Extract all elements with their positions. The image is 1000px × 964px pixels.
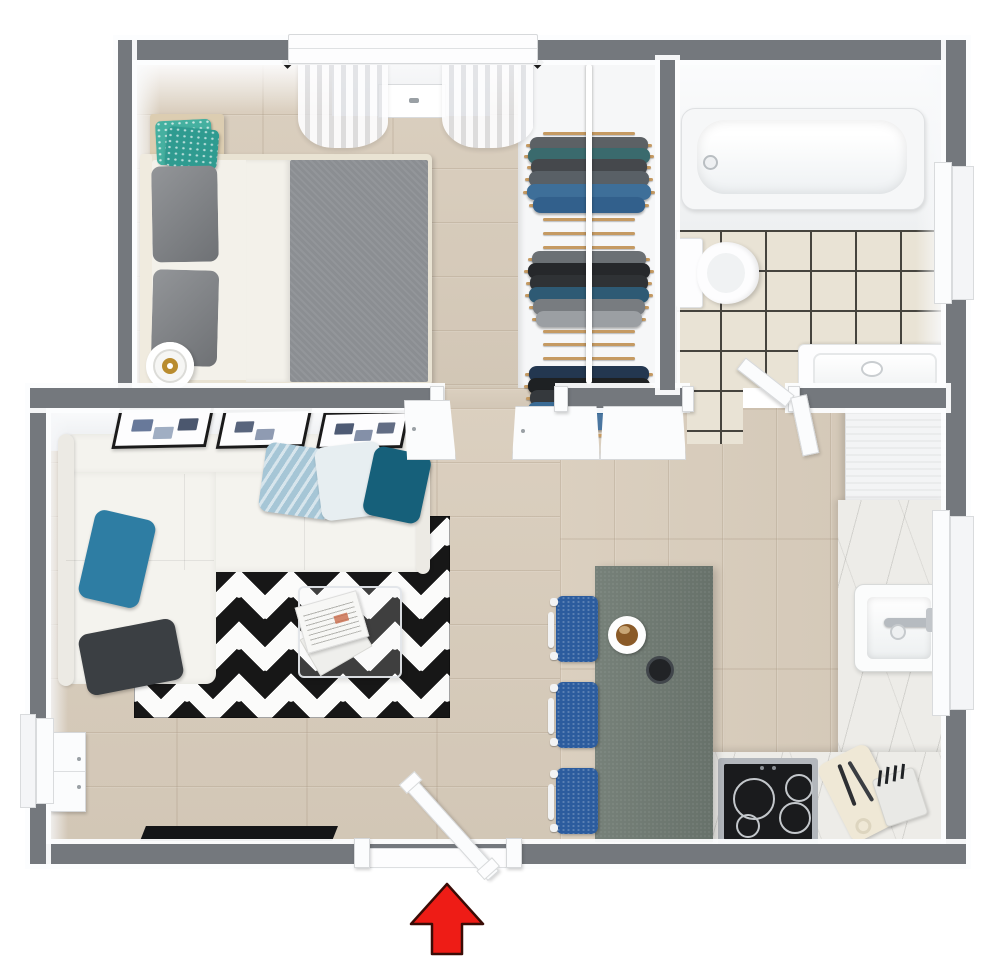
chair-leg: [550, 652, 558, 660]
floor-plan: [0, 0, 1000, 964]
coffee-foam: [619, 626, 630, 634]
bedroom-window: [288, 34, 538, 64]
art-shape: [234, 421, 254, 433]
bathroom-doorway-tiles: [687, 388, 743, 444]
window-handle: [409, 98, 419, 103]
bedroom-door-leaf: [404, 400, 456, 460]
door-jamb: [506, 838, 522, 868]
knife: [877, 770, 882, 786]
art-shape: [376, 422, 396, 433]
chair-leg: [548, 784, 554, 820]
chair-leg: [550, 598, 558, 606]
tv: [140, 826, 338, 841]
closet-rail: [586, 64, 592, 384]
cutting-board-handle: [853, 815, 875, 837]
closet-door-panel: [600, 406, 686, 460]
cooktop-burner: [785, 774, 813, 802]
bathtub-basin: [697, 120, 907, 194]
wall-divider-living: [30, 388, 440, 408]
bed-sheet-fold: [246, 160, 290, 382]
chair-leg: [550, 770, 558, 778]
sideboard-divider: [51, 771, 85, 772]
chair-leg: [548, 698, 554, 734]
wall-divider-closet: [560, 388, 685, 408]
closet-door-panel: [512, 406, 600, 460]
sheer-curtain-left: [298, 60, 388, 148]
chair-seat: [556, 768, 598, 834]
door-handle: [412, 427, 416, 431]
cooktop-burner: [733, 778, 775, 820]
cooktop-control: [772, 766, 776, 770]
sofa-cushion-seam: [184, 474, 185, 570]
chair-leg: [550, 738, 558, 746]
wall-closet-bathroom: [660, 60, 675, 390]
sink-drain: [890, 624, 906, 640]
door-handle: [521, 429, 525, 433]
dining-chair: [556, 682, 598, 748]
vanity-faucet: [861, 361, 883, 377]
wall-top: [118, 40, 966, 60]
chair-leg: [550, 684, 558, 692]
toilet-bowl: [697, 242, 759, 304]
sideboard: [50, 732, 86, 812]
door-jamb: [682, 386, 694, 412]
kitchen-window: [932, 510, 950, 716]
living-window: [36, 718, 54, 804]
wall-art-frame: [111, 405, 214, 449]
chair-leg: [548, 612, 554, 648]
cooktop-control: [760, 766, 764, 770]
art-shape: [353, 430, 373, 441]
chair-seat: [556, 596, 598, 662]
door-jamb: [354, 838, 370, 868]
coffee-cup-saucer: [608, 616, 646, 654]
knife: [893, 765, 898, 781]
bed-blanket: [290, 160, 428, 382]
door-jamb: [554, 386, 568, 412]
table-lamp: [146, 342, 194, 390]
entrance-arrow: [400, 876, 496, 962]
small-bowl: [646, 656, 674, 684]
bathroom-window-sill: [952, 166, 974, 300]
tall-cabinet: [845, 404, 948, 504]
toilet-seat: [707, 253, 745, 293]
art-shape: [131, 419, 153, 432]
dining-table: [595, 566, 713, 842]
art-shape: [177, 418, 199, 431]
teal-cushion: [164, 126, 219, 170]
chair-seat: [556, 682, 598, 748]
sheer-curtain-right: [442, 60, 534, 148]
living-window-sill: [20, 714, 36, 808]
wall-art-frame: [216, 408, 313, 449]
sideboard-handle: [77, 785, 81, 789]
newspaper-text: [302, 598, 361, 645]
art-shape: [152, 427, 174, 440]
dining-chair: [556, 768, 598, 834]
art-shape: [334, 423, 354, 434]
bed-pillow: [151, 165, 219, 262]
chair-leg: [550, 824, 558, 832]
entrance-arrow-shape: [411, 884, 483, 954]
cooktop-burner: [736, 814, 760, 838]
dining-chair: [556, 596, 598, 662]
sink-faucet-spout: [884, 618, 930, 627]
sideboard-handle: [77, 757, 81, 761]
bathtub-drain: [703, 155, 718, 170]
wall-divider-bathroom: [790, 388, 946, 408]
cooktop-burner: [779, 802, 811, 834]
bathroom-window: [934, 162, 952, 304]
lamp-highlight: [167, 363, 173, 369]
art-shape: [254, 428, 274, 440]
bathroom-vanity: [798, 344, 948, 390]
kitchen-window-sill: [950, 516, 974, 710]
knife: [885, 767, 890, 784]
knife: [900, 764, 905, 779]
window-mullion: [289, 48, 537, 49]
wall-left-upper: [118, 40, 132, 390]
bedroom-window-sash: [378, 84, 446, 118]
